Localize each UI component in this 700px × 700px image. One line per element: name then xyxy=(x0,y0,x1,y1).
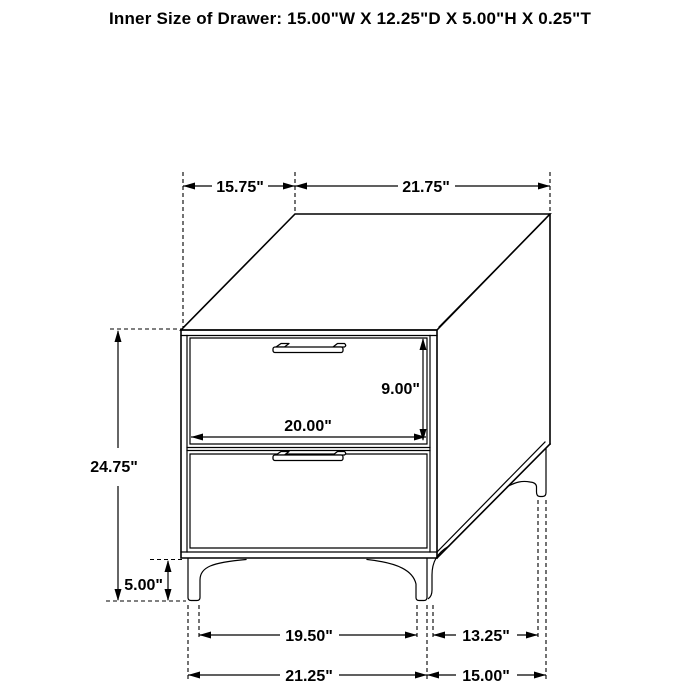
dim-label-base-depth: 15.00" xyxy=(462,668,510,685)
dim-label-leg-height: 5.00" xyxy=(124,577,163,594)
dim-label-drawer-front-width: 20.00" xyxy=(284,418,332,435)
dim-top-width: 21.75" xyxy=(295,172,550,212)
dim-leg-height: 5.00" xyxy=(124,560,182,602)
front-right-leg-side xyxy=(429,546,450,599)
dim-drawer-opening-height: 9.00" xyxy=(381,338,426,441)
dim-label-side-leg-span: 13.25" xyxy=(462,628,510,645)
dim-label-front-leg-span: 19.50" xyxy=(285,628,333,645)
nightstand-dimension-diagram: 15.75" 21.75" 24.75" 5.00" xyxy=(0,0,700,700)
dim-drawer-front-width: 20.00" xyxy=(191,418,426,441)
side-panel-bottom-outer xyxy=(437,444,550,558)
dim-front-leg-span: 19.50" xyxy=(199,605,417,645)
top-face xyxy=(181,214,550,330)
dim-label-base-width: 21.25" xyxy=(285,668,333,685)
back-right-leg xyxy=(508,449,547,497)
dim-label-overall-height: 24.75" xyxy=(90,459,138,476)
dim-label-top-width: 21.75" xyxy=(402,179,450,196)
drawer-front-bottom xyxy=(190,454,427,548)
nightstand-drawing xyxy=(181,214,550,601)
dim-overall-height: 24.75" xyxy=(90,329,186,601)
product-dimension-image: Inner Size of Drawer: 15.00"W X 12.25"D … xyxy=(0,0,700,700)
dim-side-leg-span: 13.25" xyxy=(433,500,538,645)
handle-bar xyxy=(273,347,343,353)
drawer-handle-bottom xyxy=(273,452,346,461)
dim-label-drawer-opening-height: 9.00" xyxy=(381,381,420,398)
top-edge-inner-line xyxy=(439,219,546,327)
side-panel-bottom-inner xyxy=(437,442,545,552)
dim-label-top-depth: 15.75" xyxy=(216,179,264,196)
dim-base-depth: 15.00" xyxy=(427,500,546,685)
front-right-leg xyxy=(367,559,427,601)
drawer-handle-top xyxy=(273,344,346,353)
dim-base-width: 21.25" xyxy=(188,605,427,685)
dim-top-depth: 15.75" xyxy=(183,172,295,327)
front-left-leg xyxy=(188,559,246,601)
